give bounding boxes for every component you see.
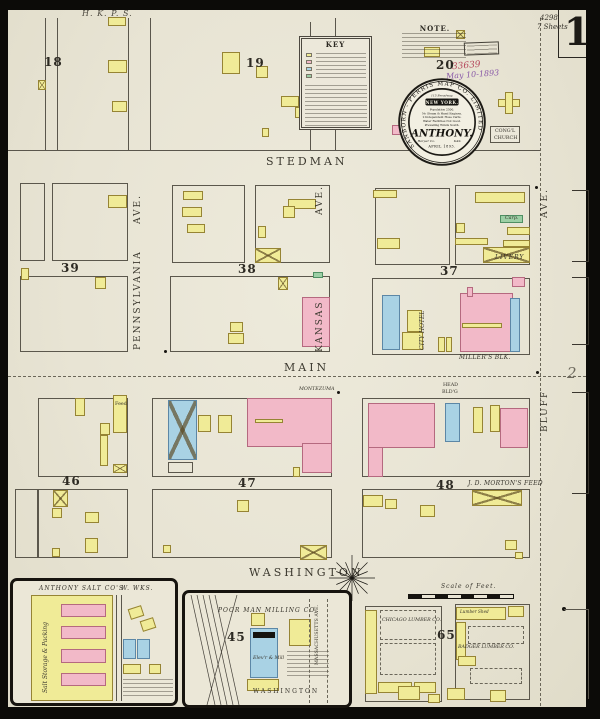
street-line (128, 18, 129, 150)
building-frame (475, 192, 525, 203)
seal-county: Harper Co. (417, 139, 436, 143)
survey-line (588, 609, 589, 699)
montezuma-label: MONTEZUMA (299, 387, 335, 392)
adjacent-sheet-ref: 2 (567, 366, 577, 381)
salt-works-title: ANTHONY SALT CO'S (39, 586, 124, 592)
key-swatch-frame (306, 53, 312, 57)
margin-bracket (572, 277, 589, 345)
building-stone (382, 295, 400, 350)
seal-state: KAS. (453, 139, 461, 143)
building-frame (281, 96, 299, 107)
library-stamp-box (464, 41, 499, 55)
corner-box-line (558, 10, 559, 58)
building-frame (21, 268, 29, 280)
hydrant-dot (337, 391, 340, 394)
block-number-39: 39 (61, 262, 80, 274)
lumber-shed-label: Lumber Shed (460, 610, 489, 614)
main-st-centerline (8, 376, 586, 377)
seal-address: 115 Broadway. (431, 94, 453, 98)
seal-date: APRIL 1893. (427, 144, 455, 148)
key-title: KEY (300, 40, 371, 49)
building-frame (385, 499, 397, 509)
building-frame (262, 128, 269, 137)
lumber-pile (468, 626, 524, 644)
building-frame (198, 415, 211, 432)
street-label-pennsylvania-ave: AVE. (134, 194, 143, 224)
building-frame (237, 500, 249, 512)
block-outline (375, 188, 450, 265)
street-label-bluff-ave: AVE. (541, 188, 550, 218)
salt-vat (61, 604, 106, 617)
block-number-37: 37 (440, 265, 459, 277)
salt-works-inset: ANTHONY SALT CO'S W. WKS. Salt Storage &… (10, 578, 178, 706)
building-frame (505, 540, 517, 550)
building-frame (113, 464, 127, 473)
building-brick (467, 287, 473, 297)
block-outline (20, 183, 45, 261)
building-frame (163, 545, 171, 553)
sanborn-map-sheet: CONG'L CHURCH (0, 0, 600, 719)
inset-text-lines (123, 679, 173, 697)
reservoir (137, 639, 150, 659)
compass-center (351, 577, 353, 579)
lumber-pile (380, 610, 436, 640)
church-label: CONG'L (495, 129, 515, 134)
water-works-building (140, 617, 157, 632)
street-label-kansas-ave: AVE. (316, 185, 325, 215)
building-frame (462, 323, 502, 328)
building-frame (85, 512, 99, 523)
street-label-stedman: STEDMAN (266, 156, 348, 167)
building-frame (255, 419, 283, 423)
block-number-65: 65 (437, 629, 456, 641)
building-frame (455, 238, 488, 245)
margin-bracket (572, 392, 589, 494)
building-frame (473, 407, 483, 433)
key-swatch-brick (306, 60, 312, 64)
block-number-18: 18 (44, 56, 63, 68)
reservoir (123, 639, 136, 659)
building-frame (38, 80, 46, 90)
building-frame (490, 690, 506, 702)
building-frame (507, 227, 530, 235)
building-frame (398, 686, 420, 700)
milling-title: POOR MAN MILLING CO. (218, 608, 318, 614)
block-outline (15, 489, 38, 558)
elevator-mill-label: Elev'r & Mill (253, 656, 284, 661)
salt-vat (61, 626, 106, 639)
bluff-ave-centerline (540, 18, 541, 706)
building-frame (95, 277, 106, 289)
block-number-45: 45 (227, 631, 246, 643)
pump-house (123, 664, 141, 674)
salt-storage-label: Salt Storage & Packing (43, 622, 49, 693)
hydrant-dot (164, 350, 167, 353)
lumber-pile (470, 668, 522, 684)
building-frame (255, 248, 281, 263)
index-sheets: 7 Sheets (537, 24, 568, 31)
note-title: NOTE. (402, 24, 468, 33)
street-label-bluff: BLUFF (541, 390, 550, 432)
church-building (505, 92, 513, 114)
survey-line (564, 609, 588, 610)
hydrant-dot (536, 371, 539, 374)
building-frame (100, 423, 110, 435)
building-frame (420, 505, 435, 517)
street-label-massachusetts: MASSACHUSETTS AVE. (315, 605, 320, 665)
building-frame (283, 206, 295, 218)
building-frame (258, 226, 266, 238)
salt-vat (61, 649, 106, 663)
building-frame (490, 405, 500, 432)
key-panel: KEY (299, 36, 372, 130)
building-brick (512, 277, 525, 287)
building-brick (500, 408, 528, 448)
street-label-washington-inset: WASHINGTON (253, 689, 319, 695)
building-frame (278, 277, 288, 290)
badger-lumber-label: BADGER LUMBER CO. (458, 645, 514, 650)
stamp-text-lines (467, 44, 497, 54)
building-frame (428, 694, 440, 703)
street-label-kansas: KANSAS (316, 300, 325, 352)
building-frame (218, 415, 232, 433)
building-frame (289, 619, 311, 646)
block-number-46: 46 (62, 475, 81, 487)
sheet-number: 1 (564, 13, 590, 51)
building-frame (52, 508, 62, 518)
note-text-lines (402, 33, 466, 59)
building-frame (230, 322, 243, 332)
building-stone (445, 403, 460, 442)
lumber-pile (380, 643, 436, 675)
salt-vat (61, 673, 106, 686)
building-frame (300, 545, 327, 560)
inset-street-line (116, 595, 117, 701)
building-frame (53, 490, 68, 507)
block-number-48: 48 (436, 479, 455, 491)
seal-city: NEW YORK. (426, 100, 459, 105)
building-frame (293, 467, 300, 477)
building-frame (363, 495, 383, 507)
note-panel: NOTE. (402, 24, 468, 64)
block-number-38: 38 (238, 263, 257, 275)
index-number: 4298 (540, 15, 558, 22)
building-brick (368, 447, 383, 477)
lumber-office-strip (365, 610, 377, 694)
lumber-office-strip (456, 622, 466, 660)
building-frame (108, 60, 127, 73)
building-frame (85, 538, 98, 553)
key-text-lines (305, 85, 367, 127)
coal-house (458, 656, 476, 666)
inset-street-line (327, 599, 328, 703)
building-frame (373, 190, 397, 198)
building-frame (222, 52, 240, 74)
building-frame (183, 191, 203, 200)
margin-bracket (572, 190, 589, 262)
head-bldg-label: BLD'G (442, 390, 458, 395)
building-frame (112, 101, 127, 112)
water-works-title: W. WKS. (121, 586, 153, 592)
opera-house-building (168, 400, 197, 460)
lumber-office (508, 606, 524, 617)
building-special (313, 272, 323, 278)
feed-warehouse (472, 490, 522, 506)
head-bldg-label: HEAD (443, 383, 458, 388)
sanborn-seal: SANBORN - PERRIS MAP CO. LIMITED 115 Bro… (396, 76, 488, 168)
seal-town: ANTHONY. (410, 127, 473, 139)
building-frame (377, 238, 400, 249)
block-outline (20, 276, 128, 352)
building-frame (108, 195, 127, 208)
inset-text-lines (287, 651, 329, 677)
mill-name-band (253, 632, 275, 638)
carpenter-label: Carp. (505, 216, 518, 221)
building-brick (302, 443, 332, 473)
chicago-lumber-label: CHICAGO LUMBER CO. (382, 618, 441, 623)
building-brick (368, 403, 435, 448)
building-frame (503, 240, 530, 247)
key-swatch-special (306, 74, 312, 78)
building-frame (75, 398, 85, 416)
street-label-main: MAIN (284, 362, 329, 373)
key-swatch-stone (306, 67, 312, 71)
corner-box-line (558, 57, 586, 58)
feed-label: Feed (115, 402, 127, 407)
key-text-lines (316, 53, 366, 81)
mill-outbuilding (251, 613, 265, 626)
building-frame (108, 17, 126, 26)
small-shop-outline (168, 462, 193, 473)
church-label: CHURCH (494, 136, 517, 141)
street-line (57, 18, 58, 150)
city-hotel-label: CITY HOTEL (420, 311, 426, 350)
building-frame (446, 337, 452, 352)
building-stone (510, 298, 520, 352)
milling-inset: POOR MAN MILLING CO. 45 Elev'r & Mill MA… (182, 590, 352, 708)
water-works-building (128, 605, 145, 620)
pencil-note: H. K. P. S. (82, 9, 133, 18)
building-frame (149, 664, 161, 674)
building-frame (447, 688, 465, 700)
street-line (150, 18, 151, 150)
livery-label: LIVERY (495, 255, 524, 261)
hydrant-dot (535, 186, 538, 189)
church-label-box: CONG'L CHURCH (490, 126, 520, 143)
millers-block-label: MILLER'S BLK. (459, 355, 511, 361)
building-frame (228, 333, 244, 344)
building-frame (438, 337, 445, 352)
building-frame (456, 223, 465, 233)
inset-street-line (121, 595, 122, 701)
building-frame (515, 552, 523, 559)
building-frame (100, 435, 108, 466)
mortons-feed-label: J. D. MORTON'S FEED (468, 481, 543, 487)
building-frame (182, 207, 202, 217)
block-number-19: 19 (246, 57, 265, 69)
scale-bar (408, 594, 514, 599)
scale-label: Scale of Feet. (441, 584, 496, 590)
building-frame (52, 548, 60, 557)
building-frame (187, 224, 205, 233)
street-label-pennsylvania: PENNSYLVANIA (134, 250, 143, 350)
block-number-47: 47 (238, 477, 257, 489)
